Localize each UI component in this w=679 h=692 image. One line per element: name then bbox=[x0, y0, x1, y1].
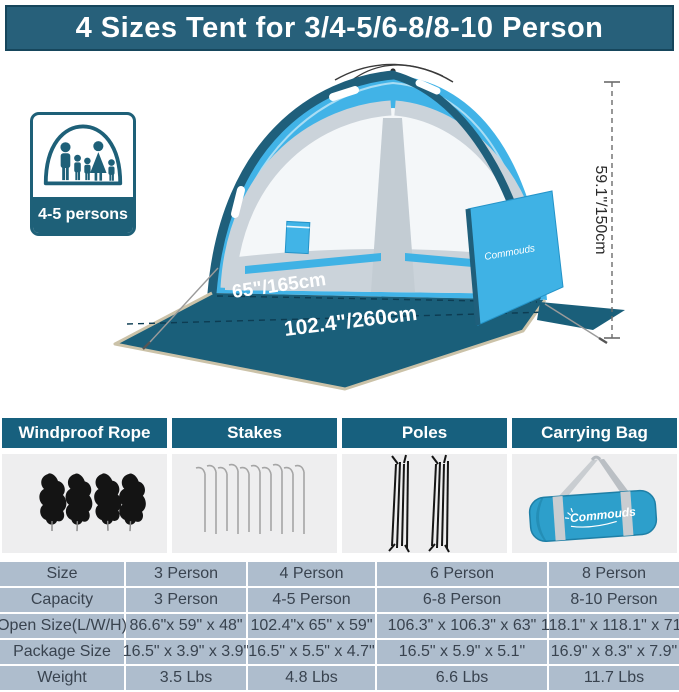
page-title: 4 Sizes Tent for 3/4-5/6-8/8-10 Person bbox=[76, 12, 604, 45]
table-cell: 16.5" x 3.9" x 3.9" bbox=[126, 640, 246, 664]
table-cell: 16.9" x 8.3" x 7.9" bbox=[549, 640, 679, 664]
tent-pocket bbox=[285, 221, 310, 253]
tent-illustration: 65"/165cm 102.4"/260cm Commouds 59.1"/15… bbox=[85, 52, 645, 402]
poles-icon bbox=[342, 454, 507, 553]
table-cell: 86.6"x 59" x 48" bbox=[126, 614, 246, 638]
table-cell: 8-10 Person bbox=[549, 588, 679, 612]
height-dimension: 59.1"/150cm bbox=[592, 82, 620, 338]
accessory-header-bag: Carrying Bag bbox=[512, 418, 677, 448]
tent-height-label: 59.1"/150cm bbox=[592, 165, 609, 254]
table-cell: 6.6 Lbs bbox=[377, 666, 547, 690]
accessory-header-poles: Poles bbox=[342, 418, 507, 448]
table-cell: 4 Person bbox=[248, 562, 375, 586]
table-header-cell: Weight bbox=[0, 666, 124, 690]
accessory-label: Poles bbox=[402, 423, 447, 443]
stakes-icon bbox=[172, 454, 337, 553]
table-cell: 6 Person bbox=[377, 562, 547, 586]
table-cell: 16.5" x 5.5" x 4.7" bbox=[248, 640, 375, 664]
carrying-bag-icon: Commouds bbox=[512, 454, 677, 553]
windproof-rope-panel bbox=[2, 454, 167, 553]
table-header-cell: Open Size(L/W/H) bbox=[0, 614, 124, 638]
accessory-label: Stakes bbox=[227, 423, 282, 443]
table-cell: 8 Person bbox=[549, 562, 679, 586]
table-cell: 4.8 Lbs bbox=[248, 666, 375, 690]
poles-panel bbox=[342, 454, 507, 553]
accessory-header-stakes: Stakes bbox=[172, 418, 337, 448]
table-cell: 6-8 Person bbox=[377, 588, 547, 612]
table-cell: 16.5" x 5.9" x 5.1" bbox=[377, 640, 547, 664]
spec-table: Size 3 Person 4 Person 6 Person 8 Person… bbox=[0, 562, 679, 690]
rope-bundles-icon bbox=[2, 454, 167, 553]
table-header-cell: Capacity bbox=[0, 588, 124, 612]
title-banner: 4 Sizes Tent for 3/4-5/6-8/8-10 Person bbox=[5, 5, 674, 51]
product-infographic: 4 Sizes Tent for 3/4-5/6-8/8-10 Person bbox=[0, 0, 679, 692]
table-cell: 3 Person bbox=[126, 562, 246, 586]
table-cell: 106.3" x 106.3" x 63" bbox=[377, 614, 547, 638]
accessory-header-rope: Windproof Rope bbox=[2, 418, 167, 448]
accessory-label: Carrying Bag bbox=[541, 423, 648, 443]
table-header-cell: Size bbox=[0, 562, 124, 586]
stakes-panel bbox=[172, 454, 337, 553]
carrying-bag-panel: Commouds bbox=[512, 454, 677, 553]
table-cell: 102.4"x 65" x 59" bbox=[248, 614, 375, 638]
table-cell: 3 Person bbox=[126, 588, 246, 612]
table-cell: 118.1" x 118.1" x 71" bbox=[549, 614, 679, 638]
table-cell: 11.7 Lbs bbox=[549, 666, 679, 690]
accessory-label: Windproof Rope bbox=[18, 423, 150, 443]
table-header-cell: Package Size bbox=[0, 640, 124, 664]
table-cell: 3.5 Lbs bbox=[126, 666, 246, 690]
table-cell: 4-5 Person bbox=[248, 588, 375, 612]
